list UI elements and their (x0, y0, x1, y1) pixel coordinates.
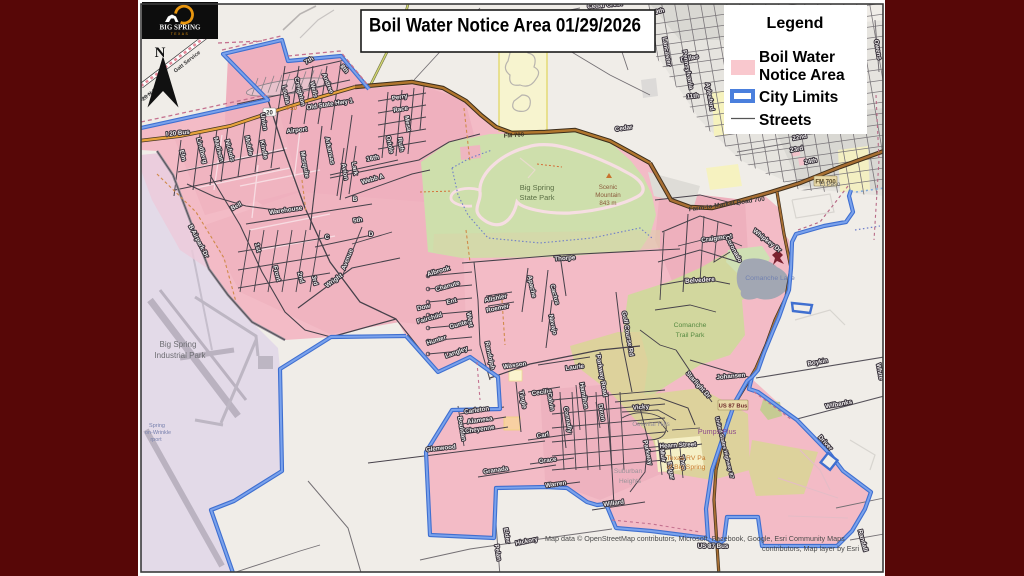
svg-text:N: N (155, 45, 166, 61)
svg-text:US 87 Bus: US 87 Bus (719, 404, 748, 410)
svg-text:on-Wrinkle: on-Wrinkle (145, 430, 171, 436)
svg-text:Big Spring: Big Spring (160, 340, 197, 349)
svg-text:rport: rport (150, 437, 162, 443)
svg-text:Texas RV Pa: Texas RV Pa (666, 455, 705, 462)
svg-text:Big Spring: Big Spring (520, 183, 555, 192)
svg-text:Vicky: Vicky (633, 403, 650, 411)
svg-text:Suburban: Suburban (614, 468, 643, 475)
svg-text:Comanche: Comanche (674, 322, 707, 329)
svg-text:Thorpe: Thorpe (554, 254, 576, 262)
svg-text:11th: 11th (686, 92, 699, 100)
svg-text:Mountain: Mountain (595, 192, 621, 199)
svg-text:Map data © OpenStreetMap contr: Map data © OpenStreetMap contributors, M… (545, 534, 845, 543)
svg-text:Pumps Plus: Pumps Plus (698, 427, 737, 436)
svg-text:B: B (353, 196, 358, 203)
svg-text:of Big Spring: of Big Spring (667, 464, 706, 471)
svg-text:Colonial Hills: Colonial Hills (632, 421, 670, 428)
svg-text:Spring: Spring (149, 423, 165, 429)
svg-text:D: D (369, 231, 374, 238)
svg-text:Boil Water: Boil Water (759, 49, 835, 66)
svg-text:C: C (325, 234, 330, 241)
svg-text:20: 20 (266, 111, 273, 117)
svg-text:843 m: 843 m (599, 200, 616, 207)
svg-text:contributors, Map layer by Esr: contributors, Map layer by Esri (762, 544, 859, 553)
svg-text:Legend: Legend (767, 15, 824, 32)
svg-text:Heights: Heights (619, 478, 642, 485)
svg-text:Streets: Streets (759, 112, 812, 129)
svg-text:BIG SPRING: BIG SPRING (159, 24, 201, 32)
svg-text:El Paso: El Paso (820, 182, 841, 188)
svg-text:Industrial Park: Industrial Park (154, 351, 206, 360)
svg-text:Trail Park: Trail Park (676, 332, 705, 339)
svg-text:Boil Water Notice Area 01/29/2: Boil Water Notice Area 01/29/2026 (369, 16, 641, 37)
svg-text:TEXAS: TEXAS (171, 32, 190, 36)
svg-text:State Park: State Park (519, 193, 554, 202)
svg-text:Scenic: Scenic (599, 184, 618, 191)
svg-text:Notice Area: Notice Area (759, 67, 845, 84)
svg-text:US 87 Bus: US 87 Bus (698, 543, 729, 550)
svg-text:City Limits: City Limits (759, 89, 838, 106)
svg-text:I 20: I 20 (287, 106, 298, 112)
